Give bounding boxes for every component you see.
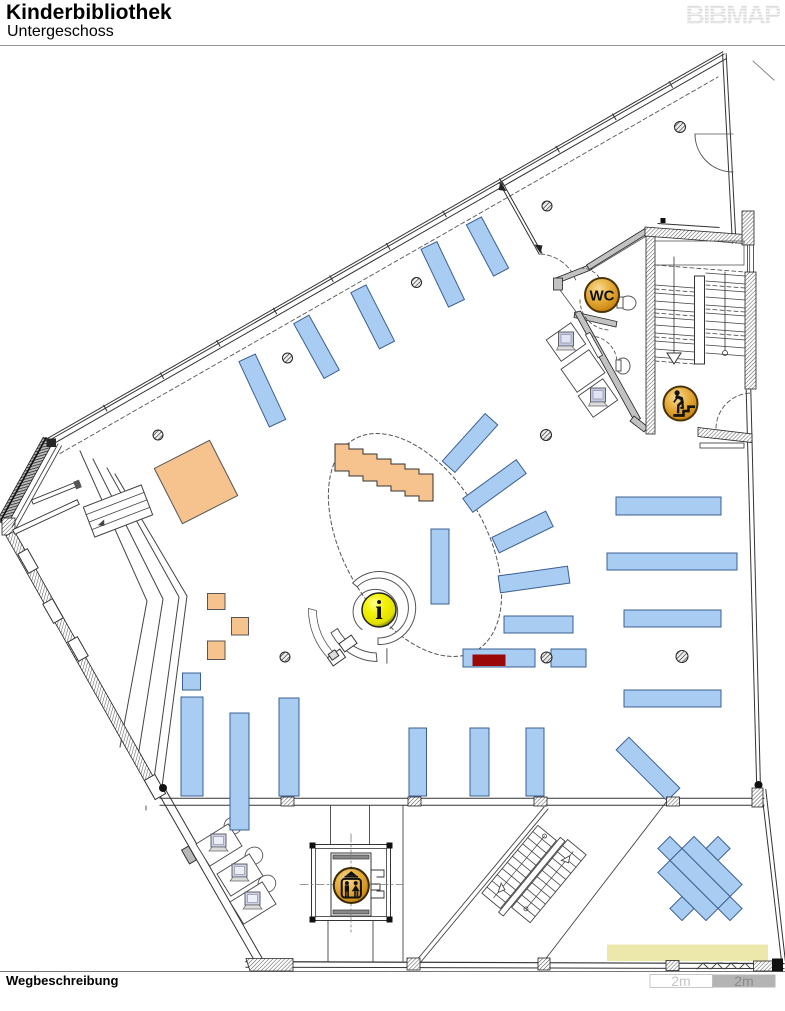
svg-text:2m: 2m bbox=[734, 973, 753, 989]
svg-text:2m: 2m bbox=[671, 973, 690, 989]
svg-text:WC: WC bbox=[590, 288, 615, 305]
svg-text:i: i bbox=[375, 595, 383, 625]
